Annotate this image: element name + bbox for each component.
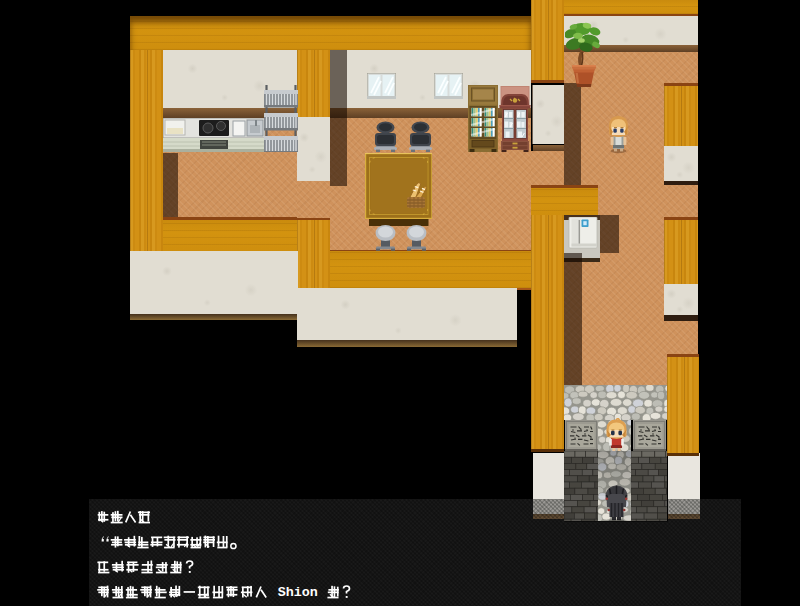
svg-text:Shion: Shion <box>278 585 318 600</box>
